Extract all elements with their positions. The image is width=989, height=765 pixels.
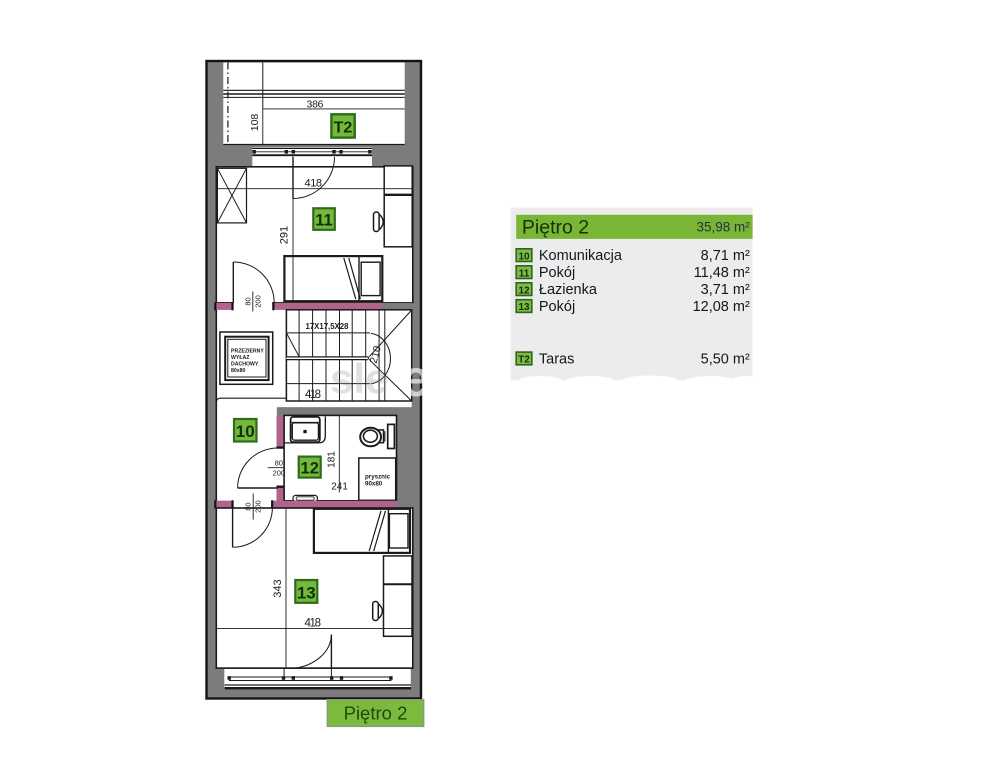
svg-text:80x80: 80x80: [231, 368, 246, 374]
svg-text:12,08 m²: 12,08 m²: [693, 299, 750, 315]
svg-text:Komunikacja: Komunikacja: [539, 248, 623, 264]
svg-text:Piętro 2: Piętro 2: [344, 703, 408, 724]
svg-text:418: 418: [305, 618, 322, 630]
svg-text:418: 418: [305, 178, 323, 190]
svg-text:343: 343: [272, 579, 284, 597]
svg-text:e: e: [401, 350, 430, 408]
svg-text:5,50 m²: 5,50 m²: [701, 351, 750, 367]
svg-text:386: 386: [307, 99, 324, 111]
svg-text:Pokój: Pokój: [539, 265, 575, 281]
svg-text:80: 80: [244, 502, 253, 510]
svg-text:200: 200: [253, 295, 262, 308]
svg-text:prysznic: prysznic: [365, 474, 391, 481]
svg-text:80: 80: [275, 459, 283, 468]
svg-text:241: 241: [331, 482, 348, 493]
svg-text:8,71 m²: 8,71 m²: [701, 248, 750, 264]
svg-text:17X17,5X28: 17X17,5X28: [306, 322, 350, 331]
svg-text:WYŁAZ: WYŁAZ: [231, 355, 250, 361]
svg-text:sle: sle: [330, 355, 388, 402]
svg-text:13: 13: [518, 302, 530, 313]
svg-text:13: 13: [297, 584, 316, 603]
svg-text:T2: T2: [334, 120, 353, 137]
svg-text:Pokój: Pokój: [539, 299, 575, 315]
svg-text:DACHOWY: DACHOWY: [231, 362, 259, 368]
svg-text:12: 12: [301, 460, 319, 478]
svg-text:35,98 m²: 35,98 m²: [697, 220, 751, 235]
svg-text:Taras: Taras: [539, 351, 574, 367]
svg-text:10: 10: [518, 251, 530, 262]
svg-text:291: 291: [279, 226, 291, 244]
svg-text:10: 10: [236, 422, 255, 441]
svg-text:181: 181: [327, 451, 338, 468]
svg-text:Łazienka: Łazienka: [539, 282, 598, 298]
svg-text:418: 418: [305, 389, 321, 401]
svg-text:108: 108: [249, 114, 261, 132]
svg-text:3,71 m²: 3,71 m²: [701, 282, 750, 298]
svg-text:11,48 m²: 11,48 m²: [694, 265, 750, 281]
svg-text:200: 200: [273, 469, 286, 478]
svg-text:T2: T2: [518, 355, 530, 366]
svg-text:90x80: 90x80: [365, 481, 383, 488]
svg-text:200: 200: [254, 500, 263, 513]
svg-text:12: 12: [518, 285, 530, 296]
svg-text:Piętro 2: Piętro 2: [522, 217, 589, 239]
svg-text:11: 11: [519, 268, 530, 279]
svg-text:PRZEZIERNY: PRZEZIERNY: [231, 349, 264, 355]
svg-text:80: 80: [243, 297, 252, 305]
svg-text:11: 11: [315, 212, 332, 230]
